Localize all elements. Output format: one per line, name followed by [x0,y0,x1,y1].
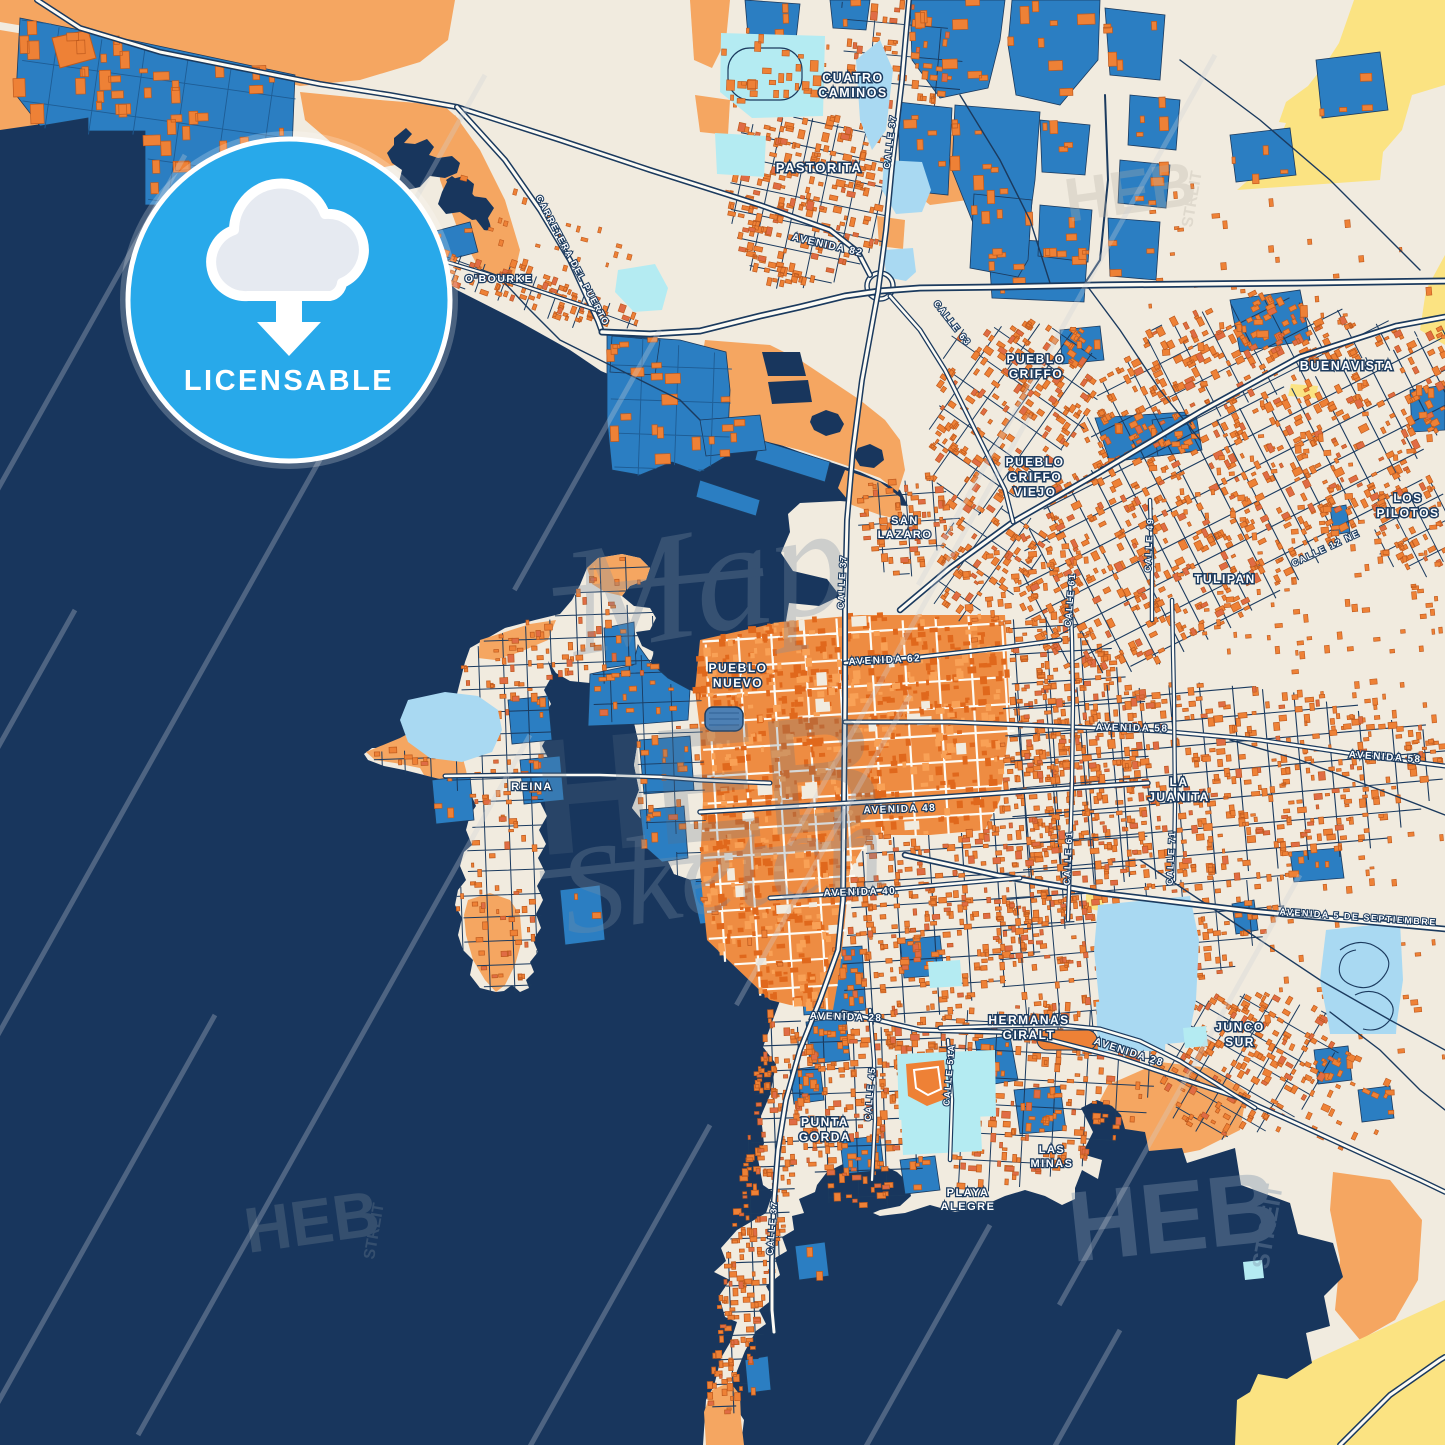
svg-text:GRIFFO: GRIFFO [1008,470,1062,484]
svg-text:TULIPAN: TULIPAN [1194,572,1256,586]
svg-text:JUANITA: JUANITA [1148,790,1210,804]
svg-text:CAMINOS: CAMINOS [818,86,888,100]
svg-text:ALEGRE: ALEGRE [941,1201,996,1213]
svg-text:VIEJO: VIEJO [1014,485,1057,499]
svg-text:PUEBLO: PUEBLO [1005,455,1064,469]
svg-text:O'BOURKE: O'BOURKE [465,273,533,285]
svg-text:BUENAVISTA: BUENAVISTA [1300,359,1394,373]
svg-text:LICENSABLE: LICENSABLE [184,365,394,397]
svg-text:JUNCO: JUNCO [1215,1020,1265,1034]
svg-text:SAN: SAN [891,515,919,527]
svg-text:GRIFFO: GRIFFO [1009,367,1063,381]
svg-text:MINAS: MINAS [1031,1158,1074,1170]
svg-text:REINA: REINA [511,781,553,793]
svg-text:CUATRO: CUATRO [822,71,884,85]
svg-text:LAZARO: LAZARO [878,529,933,541]
svg-text:PUNTA: PUNTA [801,1115,849,1129]
svg-text:PUEBLO: PUEBLO [1006,352,1065,366]
svg-text:SUR: SUR [1225,1035,1255,1049]
svg-text:LA: LA [1170,775,1189,789]
svg-text:NUEVO: NUEVO [713,676,763,690]
svg-text:AVENIDA 58: AVENIDA 58 [1096,722,1169,734]
svg-text:PUEBLO: PUEBLO [708,661,767,675]
svg-text:PLAYA: PLAYA [947,1187,990,1199]
svg-text:PASTORITA: PASTORITA [776,160,862,175]
svg-text:LAS: LAS [1039,1144,1066,1156]
svg-text:GORDA: GORDA [799,1130,851,1144]
svg-text:PILOTOS: PILOTOS [1377,506,1440,520]
svg-text:HERMANAS: HERMANAS [988,1013,1069,1027]
svg-text:LOS: LOS [1393,491,1422,505]
svg-text:GIRALT: GIRALT [1003,1028,1056,1042]
